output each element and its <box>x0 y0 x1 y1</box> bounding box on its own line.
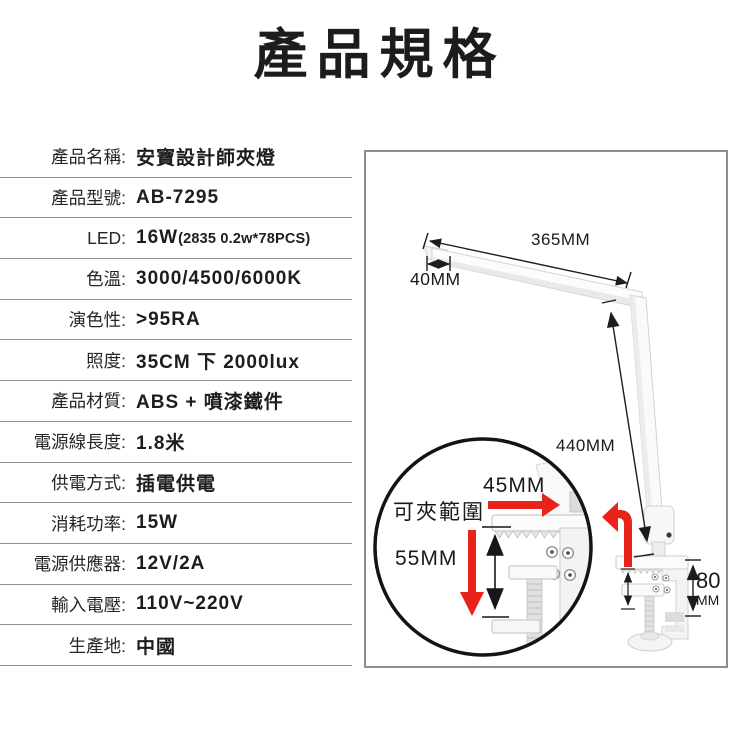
spec-label: 照度: <box>0 348 126 373</box>
spec-label: 供電方式: <box>0 470 126 495</box>
spec-value: 12V/2A <box>136 553 205 575</box>
spec-value: 15W <box>136 512 178 534</box>
spec-value-main: 15W <box>136 512 178 533</box>
spec-value-main: ABS + 噴漆鐵件 <box>136 392 284 413</box>
spec-value: >95RA <box>136 309 201 331</box>
spec-label: 電源線長度: <box>0 429 126 454</box>
spec-value: ABS + 噴漆鐵件 <box>136 387 284 414</box>
spec-row: 產品型號: AB-7295 <box>0 178 352 219</box>
spec-value: 35CM 下 2000lux <box>136 347 300 374</box>
spec-label: 產品材質: <box>0 388 126 413</box>
spec-value-main: 3000/4500/6000K <box>136 268 302 289</box>
spec-label: 色溫: <box>0 266 126 291</box>
spec-value: 1.8米 <box>136 428 185 455</box>
spec-row: 消耗功率: 15W <box>0 503 352 544</box>
lamp-diagram-panel: 365MM 40MM 440MM 45MM 可夾範圍 55MM 80 MM <box>364 150 728 668</box>
spec-value: 插電供電 <box>136 469 216 496</box>
lamp-vertical-arm <box>630 295 662 515</box>
product-spec-page: 產品規格 產品名稱: 安寶設計師夾燈 產品型號: AB-7295 LED: 16… <box>0 0 750 750</box>
spec-row: 產品名稱: 安寶設計師夾燈 <box>0 137 352 178</box>
dim-365-label: 365MM <box>531 231 590 248</box>
spec-label: 演色性: <box>0 307 126 332</box>
clamp-range-label: 可夾範圍 <box>393 502 485 523</box>
spec-value-main: 12V/2A <box>136 553 205 574</box>
dim-80-label: 80 MM <box>696 570 720 607</box>
spec-value-detail: (2835 0.2w*78PCS) <box>178 231 310 247</box>
spec-value: 安寶設計師夾燈 <box>136 143 276 170</box>
clamp-base <box>616 556 688 651</box>
spec-label: 電源供應器: <box>0 551 126 576</box>
spec-value: 中國 <box>136 632 176 659</box>
spec-value-main: 110V~220V <box>136 593 244 614</box>
spec-value-main: 16W <box>136 227 178 248</box>
spec-label: 消耗功率: <box>0 511 126 536</box>
spec-row: 照度: 35CM 下 2000lux <box>0 340 352 381</box>
spec-value-main: 中國 <box>136 637 176 658</box>
spec-value-main: >95RA <box>136 309 201 330</box>
spec-row: 供電方式: 插電供電 <box>0 463 352 504</box>
spec-label: 輸入電壓: <box>0 592 126 617</box>
spec-row: 電源供應器: 12V/2A <box>0 544 352 585</box>
dim-80-value: 80 <box>696 570 720 592</box>
lamp-joint <box>644 506 674 558</box>
spec-value-main: 插電供電 <box>136 474 216 495</box>
spec-value-main: 1.8米 <box>136 433 185 454</box>
lamp-diagram <box>364 150 728 668</box>
spec-value-main: 35CM 下 2000lux <box>136 352 300 373</box>
dim-40-label: 40MM <box>410 271 461 289</box>
dim-80-unit: MM <box>696 593 720 607</box>
dim-55-label: 55MM <box>395 548 457 569</box>
spec-label: 生產地: <box>0 633 126 658</box>
spec-row: LED: 16W(2835 0.2w*78PCS) <box>0 218 352 259</box>
dim-45-label: 45MM <box>483 475 545 496</box>
spec-row: 生產地: 中國 <box>0 625 352 666</box>
spec-value: 110V~220V <box>136 593 244 615</box>
spec-row: 產品材質: ABS + 噴漆鐵件 <box>0 381 352 422</box>
dim-440-label: 440MM <box>556 437 615 454</box>
spec-value: 3000/4500/6000K <box>136 268 302 290</box>
spec-value: 16W(2835 0.2w*78PCS) <box>136 227 310 249</box>
spec-label: LED: <box>0 228 126 249</box>
spec-table: 產品名稱: 安寶設計師夾燈 產品型號: AB-7295 LED: 16W(283… <box>0 137 352 666</box>
spec-row: 輸入電壓: 110V~220V <box>0 585 352 626</box>
spec-row: 色溫: 3000/4500/6000K <box>0 259 352 300</box>
spec-label: 產品型號: <box>0 185 126 210</box>
spec-value-main: 安寶設計師夾燈 <box>136 148 276 169</box>
page-title: 產品規格 <box>0 26 750 85</box>
spec-value: AB-7295 <box>136 187 219 209</box>
spec-value-main: AB-7295 <box>136 187 219 208</box>
spec-row: 演色性: >95RA <box>0 300 352 341</box>
spec-row: 電源線長度: 1.8米 <box>0 422 352 463</box>
spec-label: 產品名稱: <box>0 144 126 169</box>
